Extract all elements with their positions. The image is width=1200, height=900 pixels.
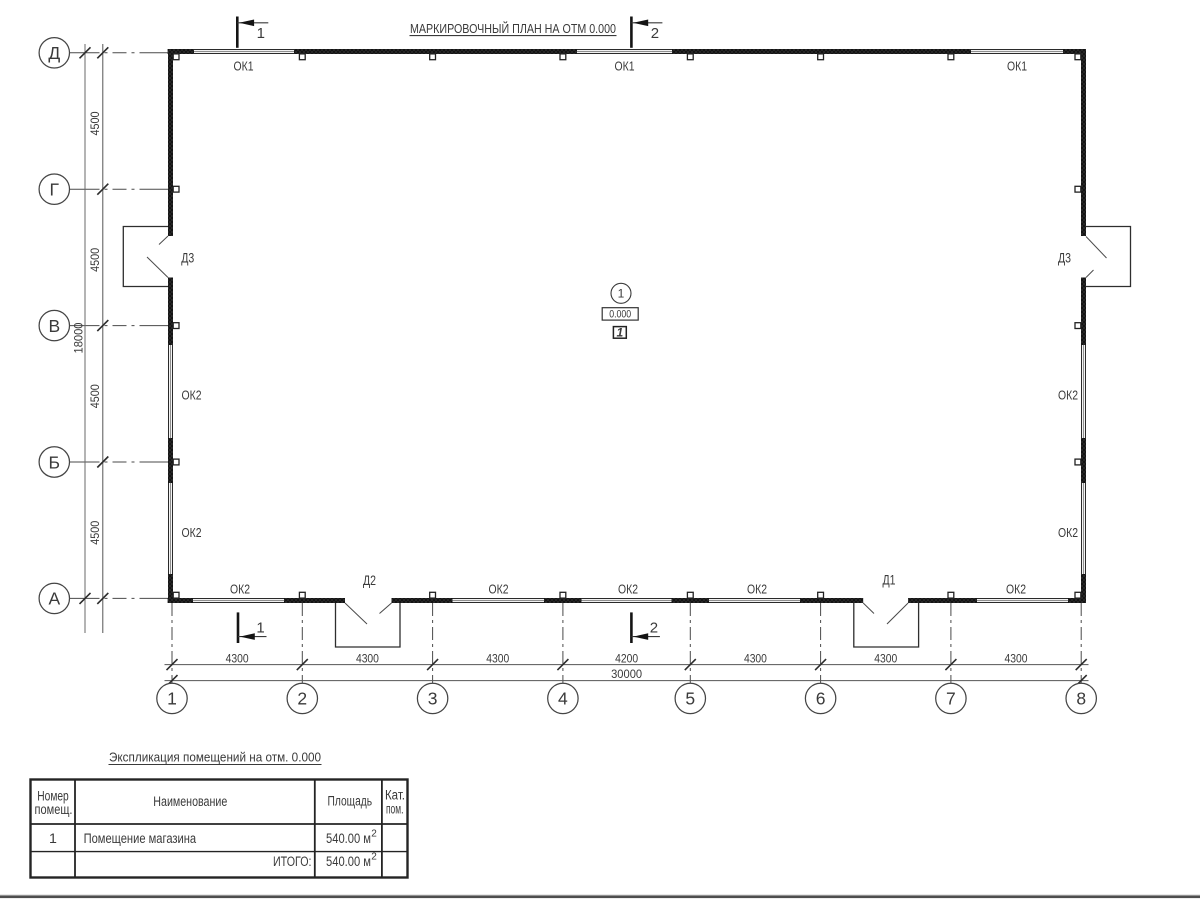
svg-text:ОК2: ОК2: [489, 582, 509, 596]
svg-text:2: 2: [297, 689, 307, 709]
svg-text:ОК2: ОК2: [182, 389, 202, 403]
svg-text:МАРКИРОВОЧНЫЙ ПЛАН НА ОТМ 0.00: МАРКИРОВОЧНЫЙ ПЛАН НА ОТМ 0.000: [410, 21, 616, 36]
svg-text:4500: 4500: [88, 248, 102, 272]
svg-text:ОК1: ОК1: [1007, 60, 1027, 74]
svg-text:4200: 4200: [615, 652, 638, 665]
svg-text:3: 3: [428, 689, 438, 709]
svg-text:ОК2: ОК2: [230, 582, 250, 596]
svg-text:ИТОГО:: ИТОГО:: [273, 854, 312, 870]
svg-text:4300: 4300: [226, 652, 249, 665]
svg-text:4500: 4500: [88, 521, 102, 545]
svg-text:540.00 м: 540.00 м: [326, 831, 371, 847]
svg-text:пом.: пом.: [386, 801, 404, 817]
svg-text:2: 2: [650, 619, 658, 636]
svg-text:В: В: [48, 316, 60, 336]
svg-text:0.000: 0.000: [609, 308, 631, 320]
svg-text:Площадь: Площадь: [328, 793, 373, 809]
svg-text:6: 6: [816, 689, 826, 709]
svg-text:1: 1: [49, 831, 57, 847]
svg-text:ОК1: ОК1: [234, 60, 254, 74]
svg-text:Б: Б: [49, 452, 60, 472]
svg-text:Д1: Д1: [883, 573, 896, 588]
svg-text:4300: 4300: [486, 652, 509, 665]
svg-text:2: 2: [651, 25, 659, 42]
svg-text:Г: Г: [50, 180, 60, 200]
svg-text:4: 4: [558, 689, 568, 709]
svg-text:2: 2: [371, 829, 377, 840]
svg-text:Д3: Д3: [181, 250, 194, 265]
svg-text:ОК2: ОК2: [1006, 582, 1026, 596]
svg-text:18000: 18000: [71, 322, 85, 353]
svg-text:2: 2: [371, 852, 377, 863]
svg-text:А: А: [48, 589, 60, 609]
svg-text:Наименование: Наименование: [153, 794, 227, 810]
svg-text:7: 7: [946, 689, 956, 709]
svg-text:ОК2: ОК2: [1058, 389, 1078, 403]
svg-text:1: 1: [257, 25, 265, 42]
svg-text:помещ.: помещ.: [35, 802, 73, 818]
svg-text:30000: 30000: [611, 668, 642, 681]
svg-text:5: 5: [685, 689, 695, 709]
svg-text:1: 1: [167, 689, 177, 709]
svg-text:8: 8: [1076, 689, 1086, 709]
svg-text:4300: 4300: [874, 652, 897, 665]
svg-text:ОК2: ОК2: [618, 582, 638, 596]
svg-text:4300: 4300: [356, 652, 379, 665]
svg-text:4500: 4500: [88, 111, 102, 135]
svg-text:Д3: Д3: [1058, 250, 1071, 265]
svg-text:4300: 4300: [1005, 652, 1028, 665]
svg-text:1: 1: [617, 326, 624, 340]
svg-text:4500: 4500: [88, 384, 102, 408]
svg-text:Помещение магазина: Помещение магазина: [84, 831, 197, 847]
svg-text:ОК2: ОК2: [1058, 526, 1078, 540]
svg-text:ОК2: ОК2: [747, 582, 767, 596]
svg-text:540.00 м: 540.00 м: [326, 854, 371, 870]
svg-text:Д2: Д2: [363, 573, 376, 588]
svg-text:Экспликация помещений на отм.: Экспликация помещений на отм. 0.000: [109, 751, 321, 765]
svg-text:Д: Д: [48, 43, 60, 63]
svg-text:1: 1: [618, 287, 625, 301]
svg-text:ОК1: ОК1: [615, 60, 635, 74]
svg-text:1: 1: [256, 619, 264, 636]
svg-text:ОК2: ОК2: [182, 526, 202, 540]
svg-text:4300: 4300: [744, 652, 767, 665]
